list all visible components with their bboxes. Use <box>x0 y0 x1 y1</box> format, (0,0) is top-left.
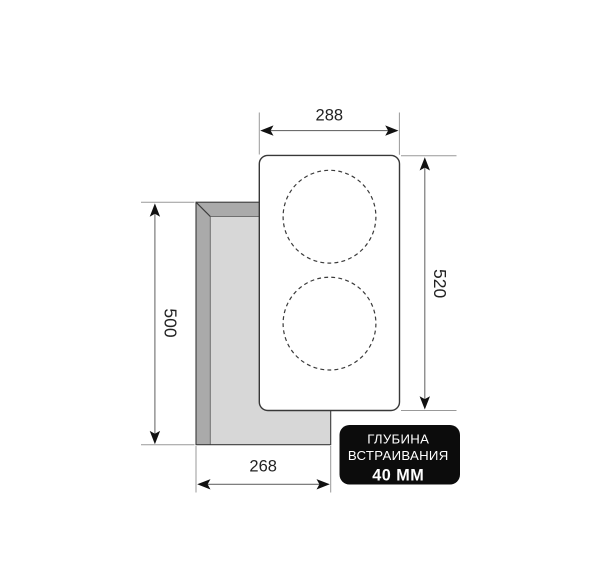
svg-text:ВСТРАИВАНИЯ: ВСТРАИВАНИЯ <box>348 448 449 463</box>
svg-text:ГЛУБИНА: ГЛУБИНА <box>367 431 429 446</box>
svg-text:268: 268 <box>249 458 277 476</box>
svg-text:288: 288 <box>316 107 344 125</box>
svg-text:40 ММ: 40 ММ <box>372 466 424 484</box>
svg-text:520: 520 <box>430 269 450 298</box>
svg-text:500: 500 <box>161 308 181 337</box>
